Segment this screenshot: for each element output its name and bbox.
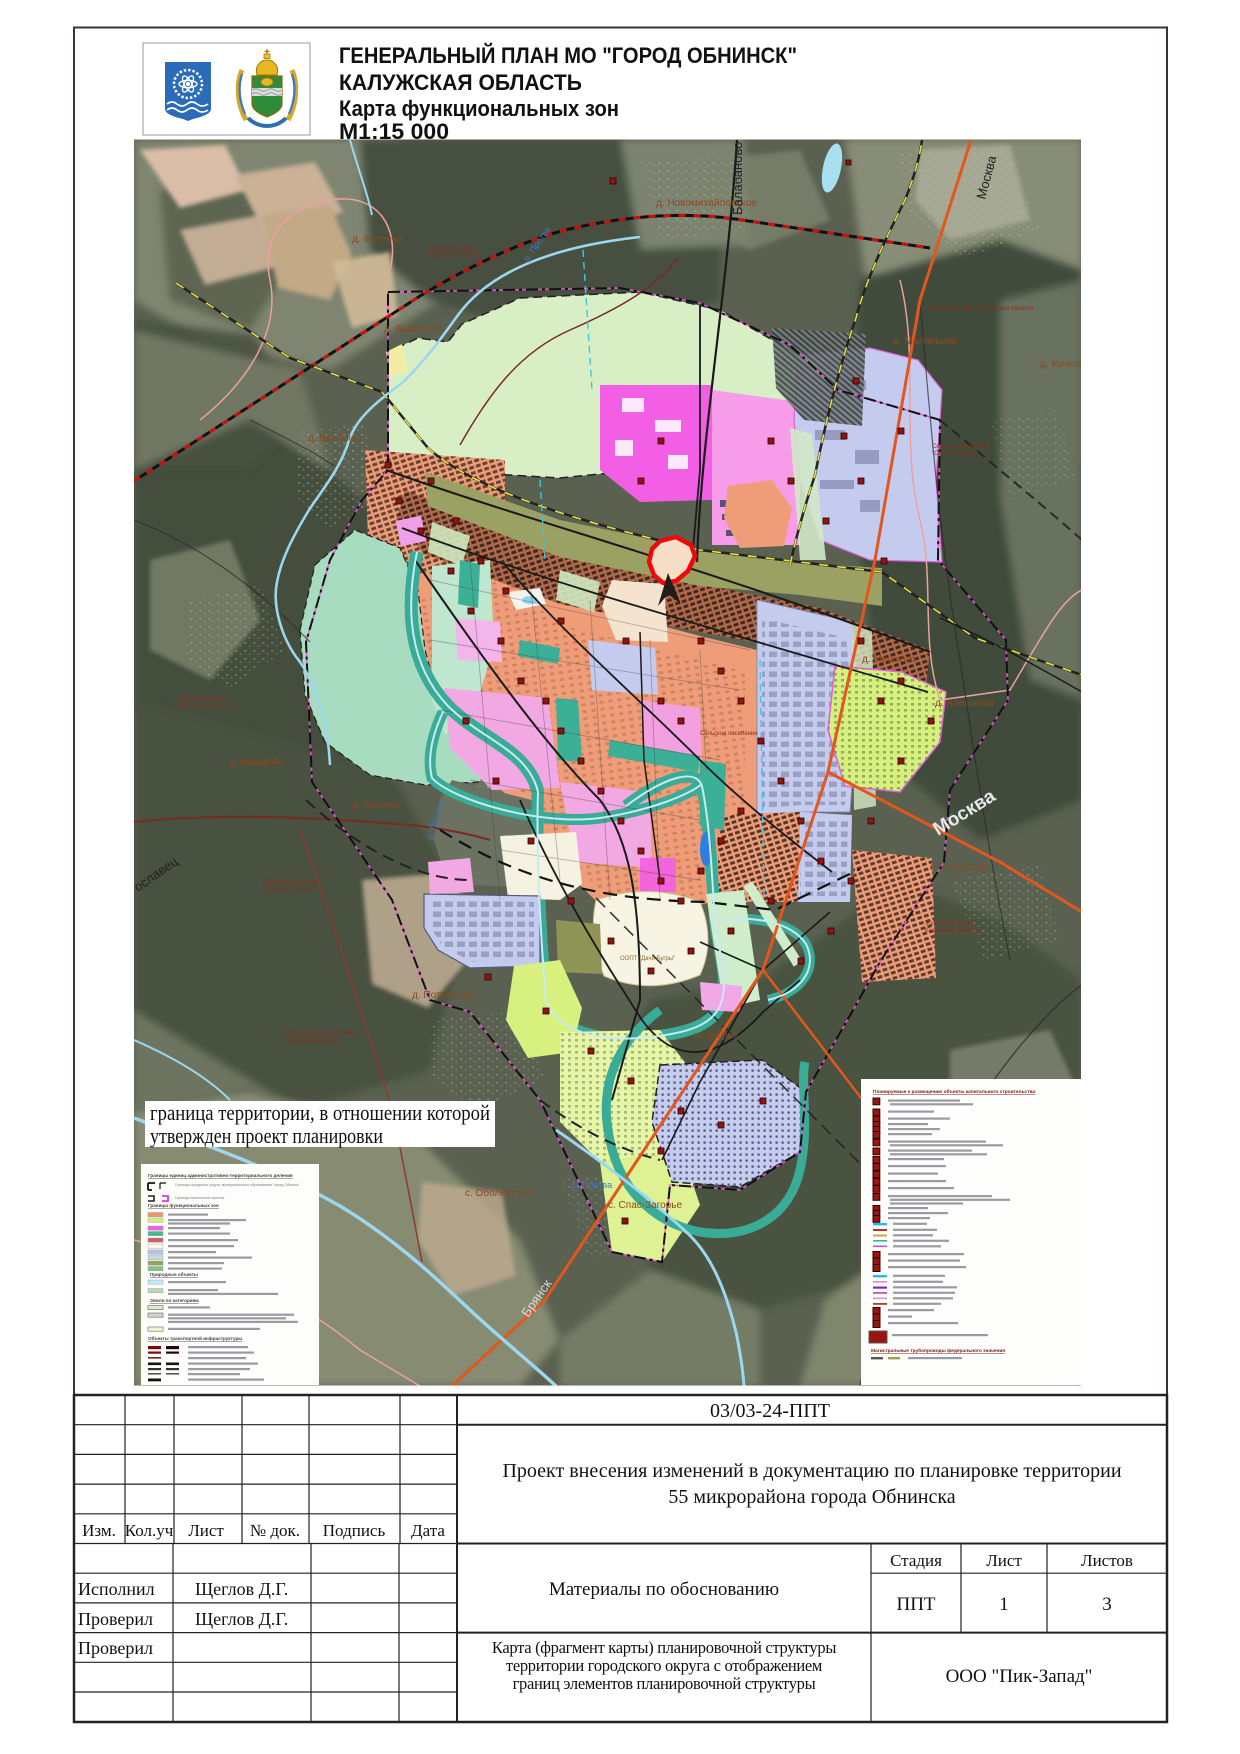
svg-text:ППТ: ППТ xyxy=(896,1594,935,1615)
svg-text:Исполнил: Исполнил xyxy=(78,1579,155,1599)
svg-text:Земли по категориям: Земли по категориям xyxy=(150,1298,199,1303)
svg-text:Калужской области: Калужской области xyxy=(285,1037,339,1044)
svg-text:"Деревня Кривское": "Деревня Кривское" xyxy=(262,886,317,892)
svg-text:03/03-24-ППТ: 03/03-24-ППТ xyxy=(710,1400,830,1422)
svg-text:М1:15 000: М1:15 000 xyxy=(339,119,449,144)
svg-text:Проверил: Проверил xyxy=(78,1638,153,1658)
svg-text:д. Алешинки: д. Алешинки xyxy=(935,698,994,709)
svg-text:граница территории, в отношени: граница территории, в отношении которой xyxy=(150,1100,490,1125)
svg-text:Лист: Лист xyxy=(986,1551,1022,1570)
svg-text:Кол.уч: Кол.уч xyxy=(125,1521,174,1540)
svg-text:Щеглов Д.Г.: Щеглов Д.Г. xyxy=(195,1609,288,1629)
svg-text:Щеглов Д.Г.: Щеглов Д.Г. xyxy=(195,1579,288,1599)
svg-text:Жуковский район: Жуковский район xyxy=(925,920,973,927)
svg-text:д. Кривское: д. Кривское xyxy=(308,433,363,444)
svg-text:Лист: Лист xyxy=(188,1521,224,1540)
svg-text:Малоярославецкий район: Малоярославецкий район xyxy=(285,1030,358,1037)
svg-text:Боровский район Калужской обла: Боровский район Калужской области xyxy=(930,305,1033,312)
svg-text:Магистральные трубопроводы фед: Магистральные трубопроводы федерального … xyxy=(871,1347,1005,1354)
svg-text:д. Вашутино: д. Вашутино xyxy=(384,324,442,335)
svg-text:Сельское поселение: Сельское поселение xyxy=(700,731,758,737)
svg-text:аг. Доброе: аг. Доброе xyxy=(694,1030,738,1040)
svg-text:д. Заречье: д. Заречье xyxy=(352,800,402,811)
svg-text:Калужской области: Калужской области xyxy=(428,252,482,259)
svg-text:Листов: Листов xyxy=(1081,1551,1133,1570)
svg-text:КАЛУЖСКАЯ ОБЛАСТЬ: КАЛУЖСКАЯ ОБЛАСТЬ xyxy=(339,70,582,95)
svg-text:Природные объекты: Природные объекты xyxy=(150,1271,198,1277)
svg-text:Планируемые к размещению объек: Планируемые к размещению объекты капитал… xyxy=(873,1088,1035,1095)
svg-text:Проверил: Проверил xyxy=(78,1609,153,1629)
svg-text:Изм.: Изм. xyxy=(82,1521,116,1540)
svg-text:Границы единиц административно: Границы единиц административно-территори… xyxy=(148,1173,293,1178)
svg-text:Стадия: Стадия xyxy=(890,1551,942,1570)
svg-text:р. Протва: р. Протва xyxy=(572,1180,612,1190)
svg-text:55 микрорайона города Обнинска: 55 микрорайона города Обнинска xyxy=(668,1486,955,1508)
svg-text:Подпись: Подпись xyxy=(323,1521,386,1540)
svg-text:д. Фатеево: д. Фатеево xyxy=(352,234,403,245)
svg-text:Карта функциональных зон: Карта функциональных зон xyxy=(339,96,619,121)
svg-text:3: 3 xyxy=(1102,1594,1112,1615)
svg-text:Боровский район: Боровский район xyxy=(428,245,476,252)
svg-text:границ элементов планировочной: границ элементов планировочной структуры xyxy=(513,1674,816,1693)
svg-text:Материалы по обоснованию: Материалы по обоснованию xyxy=(549,1579,779,1600)
svg-text:ООО "Пик-Запад": ООО "Пик-Запад" xyxy=(946,1666,1093,1687)
svg-text:ГЕНЕРАЛЬНЫЙ ПЛАН МО "ГОРОД ОБН: ГЕНЕРАЛЬНЫЙ ПЛАН МО "ГОРОД ОБНИНСК" xyxy=(339,43,797,68)
svg-text:д. Маланьино: д. Маланьино xyxy=(893,336,958,347)
svg-text:Карта (фрагмент карты) планиро: Карта (фрагмент карты) планировочной стр… xyxy=(492,1638,836,1657)
svg-text:Дата: Дата xyxy=(411,1521,445,1540)
svg-text:Балабаново: Балабаново xyxy=(730,142,745,215)
svg-text:г. Белоусово: г. Белоусово xyxy=(930,862,988,873)
svg-text:1: 1 xyxy=(999,1594,1009,1615)
svg-text:с. Оболенское: с. Оболенское xyxy=(465,1187,532,1199)
svg-text:Сельское поселение: Сельское поселение xyxy=(932,444,990,450)
svg-text:"Село "Ворсино": "Село "Ворсино" xyxy=(932,451,978,457)
svg-text:ООПТ "Дачи Бугры": ООПТ "Дачи Бугры" xyxy=(620,956,675,962)
svg-text:Проект внесения изменений в до: Проект внесения изменений в документацию… xyxy=(502,1460,1121,1482)
svg-text:территории городского округа с: территории городского округа с отображен… xyxy=(506,1656,823,1675)
svg-text:с. Спас-Загорье: с. Спас-Загорье xyxy=(608,1200,682,1211)
svg-text:д. Машково: д. Машково xyxy=(230,757,285,768)
svg-text:Калужской области: Калужской области xyxy=(925,927,979,934)
svg-text:№ док.: № док. xyxy=(250,1521,300,1540)
svg-text:д. Мишково: д. Мишково xyxy=(862,654,917,665)
svg-text:Боровский район: Боровский район xyxy=(180,695,228,702)
svg-text:Границы городского округа, мун: Границы городского округа, муниципальног… xyxy=(175,1183,300,1187)
svg-text:Сельское поселение: Сельское поселение xyxy=(262,879,320,885)
svg-text:утвержден проект планировки: утвержден проект планировки xyxy=(150,1123,383,1148)
svg-text:Границы населенных пунктов: Границы населенных пунктов xyxy=(175,1196,224,1200)
svg-text:Границы функциональных зон: Границы функциональных зон xyxy=(148,1202,219,1208)
svg-text:д. Потресово: д. Потресово xyxy=(412,990,473,1001)
svg-text:Объекты транспортной инфрастру: Объекты транспортной инфраструктуры xyxy=(148,1335,242,1341)
svg-text:Калужской области: Калужской области xyxy=(180,702,234,709)
